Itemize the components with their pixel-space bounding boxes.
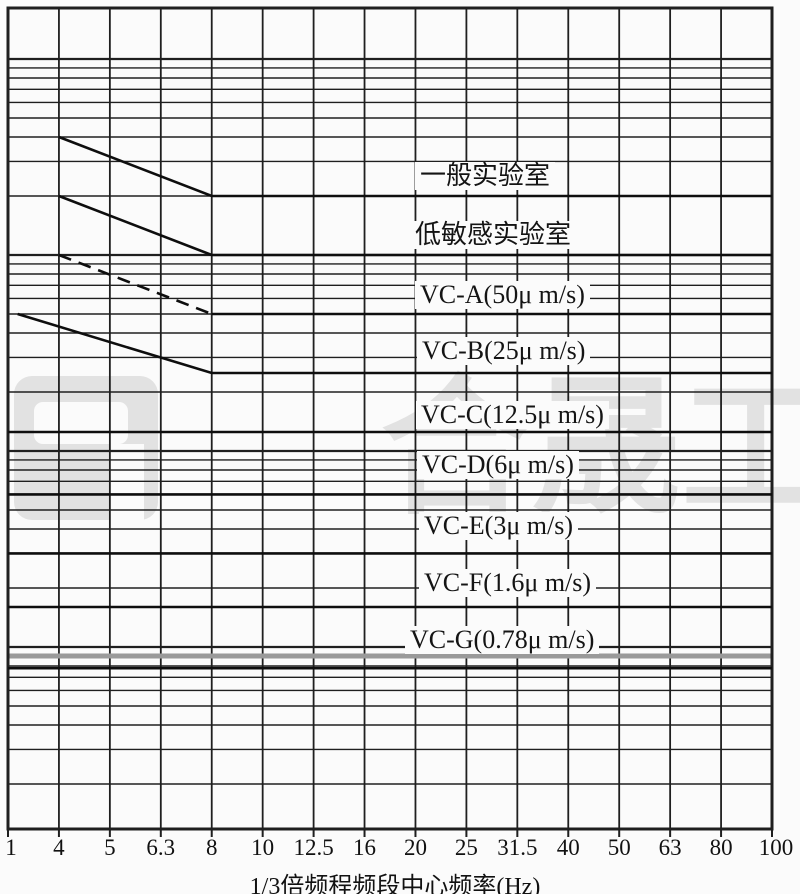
curve-label-vc-c: VC-C(12.5μ m/s) [416, 401, 609, 429]
curve-label-vc-e: VC-E(3μ m/s) [419, 512, 578, 540]
plot-area: 1456.381012.516202531.540506380100 [0, 0, 800, 894]
curve-label-low-sensitivity-lab: 低敏感实验室 [410, 221, 576, 249]
curve-label-vc-g: VC-G(0.78μ m/s) [405, 626, 599, 654]
x-tick-label: 8 [206, 835, 218, 860]
x-tick-label: 100 [759, 835, 794, 860]
x-tick-label: 31.5 [497, 835, 537, 860]
x-tick-label: 40 [557, 835, 580, 860]
curve-label-vc-a: VC-A(50μ m/s) [415, 281, 590, 309]
x-tick-label: 16 [353, 835, 376, 860]
x-tick-label: 25 [455, 835, 478, 860]
x-tick-label: 4 [53, 835, 65, 860]
x-tick-label: 20 [404, 835, 427, 860]
x-tick-label: 50 [608, 835, 631, 860]
x-tick-label: 5 [104, 835, 116, 860]
curve-label-general-lab: 一般实验室 [415, 162, 555, 190]
x-tick-label: 12.5 [293, 835, 333, 860]
x-tick-label: 10 [251, 835, 274, 860]
chart-container: 合晟工程 1456.381012.516202531.540506380100 … [0, 0, 800, 894]
x-tick-label: 63 [659, 835, 682, 860]
x-tick-label: 1 [5, 835, 17, 860]
curve-label-vc-f: VC-F(1.6μ m/s) [419, 569, 596, 597]
curve-label-vc-d: VC-D(6μ m/s) [417, 451, 579, 479]
x-axis-title: 1/3倍频程频段中心频率(Hz) [0, 866, 790, 894]
x-tick-label: 6.3 [146, 835, 175, 860]
curve-label-vc-b: VC-B(25μ m/s) [417, 337, 590, 365]
x-tick-label: 80 [710, 835, 733, 860]
curve-vc-b [18, 314, 772, 373]
